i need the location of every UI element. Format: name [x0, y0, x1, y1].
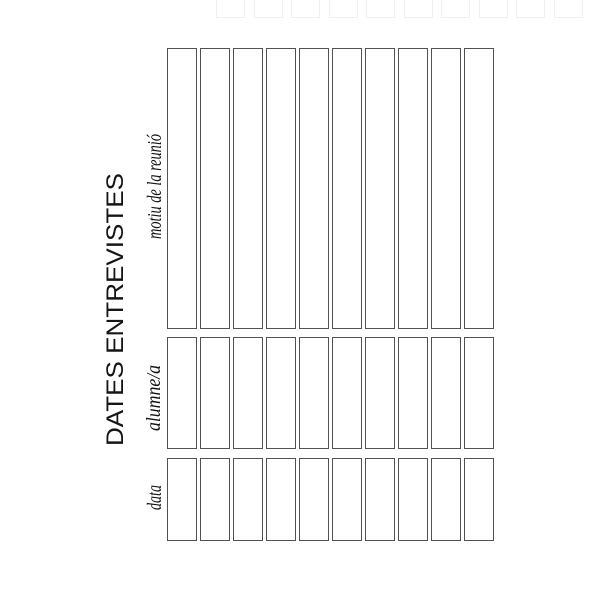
svg-text:motiu de la reunió: motiu de la reunió: [144, 134, 166, 239]
svg-text:alumne/a: alumne/a: [143, 365, 165, 431]
svg-text:data: data: [144, 485, 166, 510]
svg-text:DATES ENTREVISTES: DATES ENTREVISTES: [102, 173, 129, 446]
